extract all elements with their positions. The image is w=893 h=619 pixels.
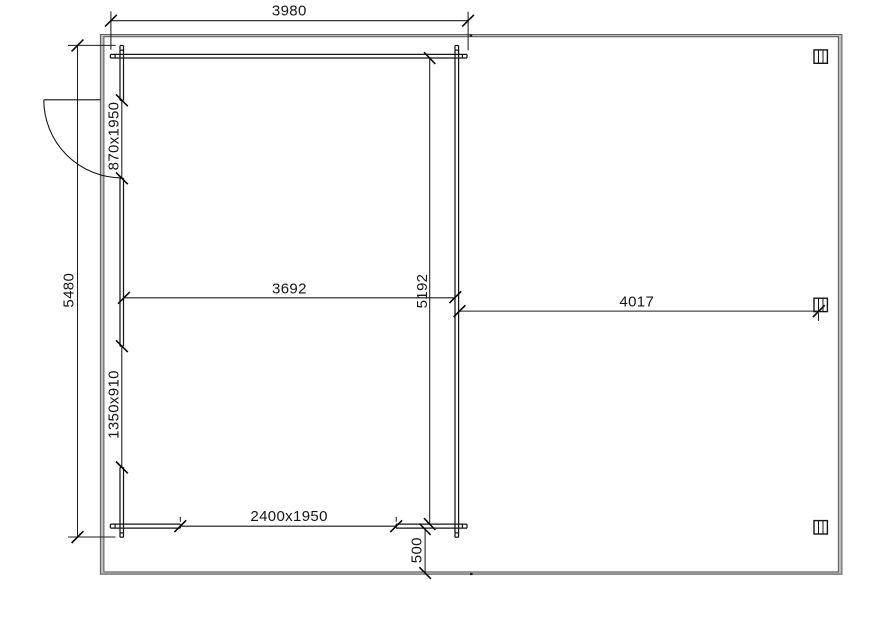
svg-text:5480: 5480 [61,273,78,308]
svg-text:500: 500 [409,537,426,563]
svg-text:870x1950: 870x1950 [106,102,123,171]
svg-text:5192: 5192 [414,274,431,309]
svg-text:3692: 3692 [272,281,307,298]
svg-text:1350x910: 1350x910 [105,370,122,439]
svg-text:2400x1950: 2400x1950 [250,508,327,525]
svg-text:4017: 4017 [619,293,654,310]
svg-text:3980: 3980 [272,3,307,20]
